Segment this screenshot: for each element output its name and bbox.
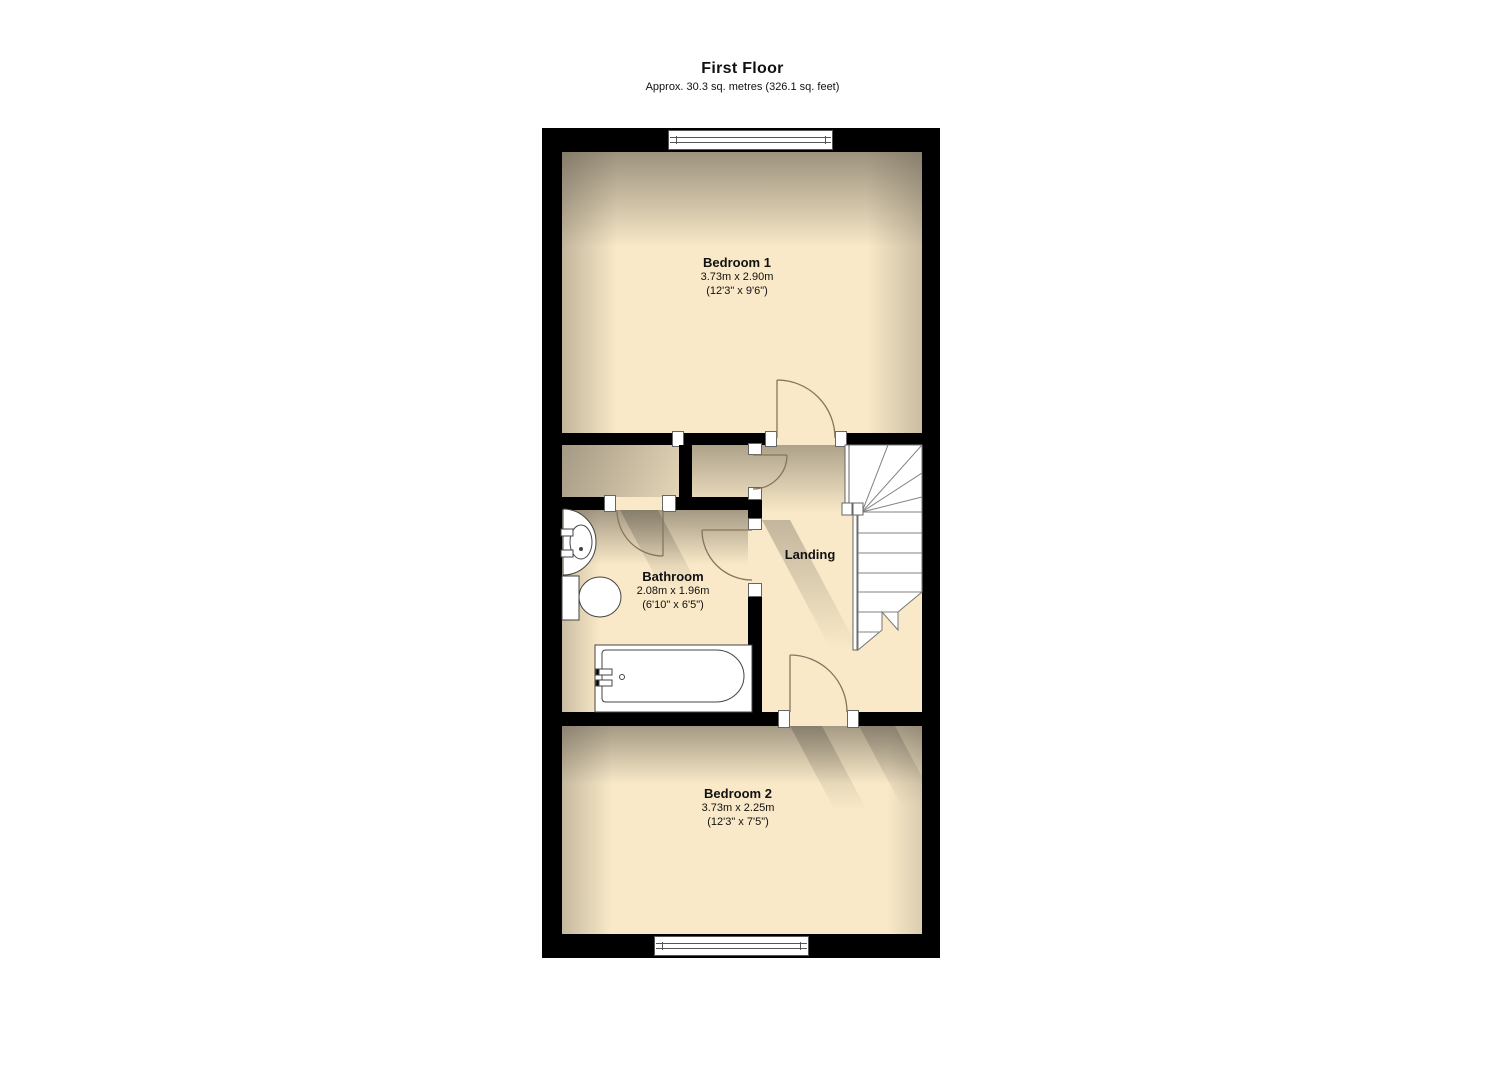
stair-newel bbox=[853, 503, 863, 515]
door-cupboard bbox=[753, 455, 787, 489]
page-title: First Floor bbox=[0, 60, 1485, 78]
stair-stringer bbox=[853, 512, 857, 650]
window-bottom bbox=[655, 937, 809, 956]
floor-plan-page: First Floor Approx. 30.3 sq. metres (326… bbox=[0, 0, 1485, 1080]
floor-plan: Bedroom 1 3.73m x 2.90m (12'3" x 9'6") B… bbox=[542, 128, 940, 958]
landing-label: Landing bbox=[750, 547, 870, 563]
stair-newel bbox=[842, 503, 852, 515]
bathtub bbox=[595, 645, 752, 712]
door-bedroom1 bbox=[777, 380, 835, 438]
stair-balustrade bbox=[845, 445, 849, 512]
bedroom1-label: Bedroom 1 3.73m x 2.90m (12'3" x 9'6") bbox=[647, 255, 827, 298]
bathroom-label: Bathroom 2.08m x 1.96m (6'10" x 6'5") bbox=[583, 569, 763, 612]
window-top bbox=[669, 131, 833, 150]
page-subtitle: Approx. 30.3 sq. metres (326.1 sq. feet) bbox=[0, 81, 1485, 93]
bedroom2-label: Bedroom 2 3.73m x 2.25m (12'3" x 7'5") bbox=[648, 786, 828, 829]
sink bbox=[561, 509, 596, 575]
door-inner-hall bbox=[617, 510, 663, 556]
door-bedroom2 bbox=[790, 655, 847, 712]
plan-vector-layer bbox=[542, 128, 940, 958]
